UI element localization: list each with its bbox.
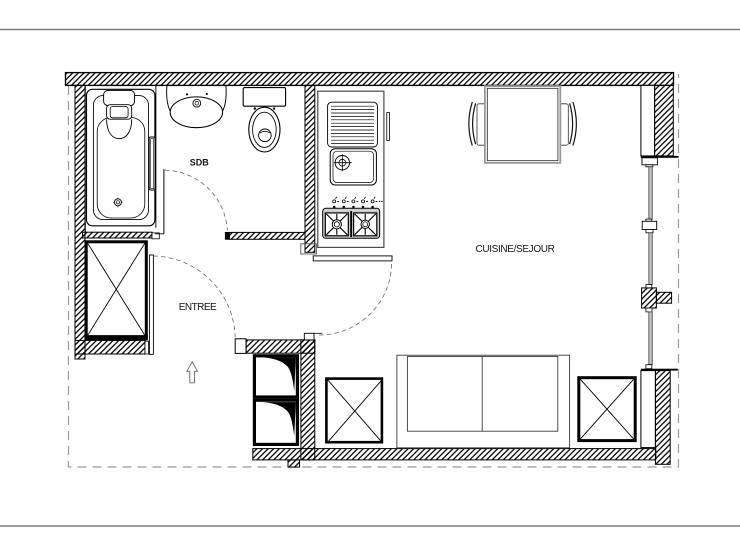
svg-text:ENTREE: ENTREE [179,302,217,313]
svg-text:CUISINE/SEJOUR: CUISINE/SEJOUR [476,244,555,255]
svg-text:SDB: SDB [190,157,210,167]
